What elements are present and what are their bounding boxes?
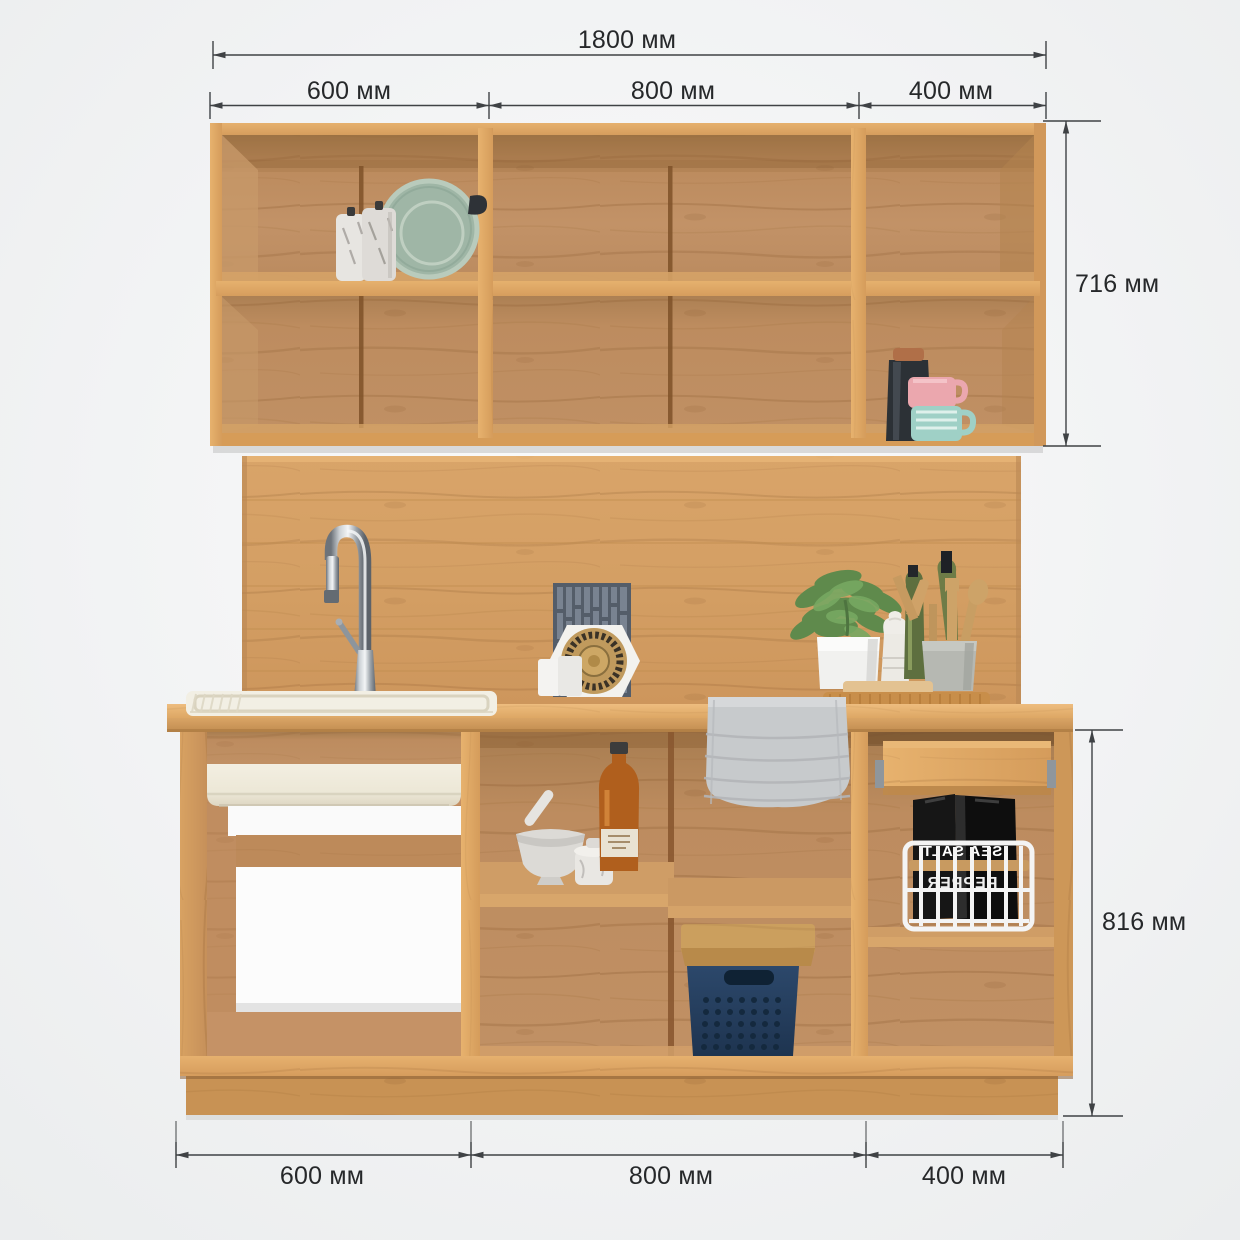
- svg-text:600 мм: 600 мм: [307, 77, 391, 105]
- svg-text:816 мм: 816 мм: [1102, 908, 1186, 936]
- svg-text:716 мм: 716 мм: [1075, 270, 1159, 298]
- svg-text:400 мм: 400 мм: [922, 1162, 1006, 1190]
- svg-text:600 мм: 600 мм: [280, 1162, 364, 1190]
- svg-text:800 мм: 800 мм: [629, 1162, 713, 1190]
- svg-text:1800 мм: 1800 мм: [578, 26, 676, 54]
- svg-text:400 мм: 400 мм: [909, 77, 993, 105]
- svg-text:800 мм: 800 мм: [631, 77, 715, 105]
